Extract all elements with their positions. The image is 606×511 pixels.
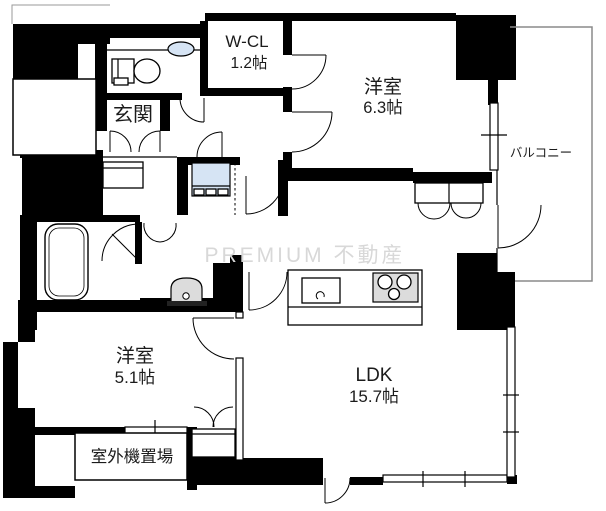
kitchen-counter-icon [288,270,422,325]
floor-plan: PREMIUM 不動産 玄関 W-CL 1.2帖 洋室 6.3帖 バルコニー 洋… [0,0,606,511]
watermark-text: PREMIUM 不動産 [205,244,406,267]
label-entrance: 玄関 [113,103,153,126]
bathtub-icon [45,224,88,300]
window-bedroom63 [490,103,498,170]
label-ldk-size: 15.7帖 [349,387,399,406]
bedroom51-closet-doors [192,407,235,457]
label-balcony: バルコニー [510,146,572,160]
toilet-door [180,98,204,122]
toilet-icon [112,59,160,85]
label-wcl-size: 1.2帖 [230,54,267,72]
entrance-closet-doors [110,131,160,152]
balcony-door [498,205,541,248]
hall-door [197,132,222,157]
label-outdoor-unit: 室外機置場 [91,447,174,466]
label-bedroom51-size: 5.1帖 [115,368,156,387]
washroom-door [249,272,287,310]
kitchen-sink-icon [302,278,340,303]
washroom-swing-doors [144,223,176,242]
stove-icon [373,273,418,302]
bedroom51-door [193,318,234,359]
floor-plan-canvas: PREMIUM 不動産 玄関 W-CL 1.2帖 洋室 6.3帖 バルコニー 洋… [0,0,606,511]
label-bedroom63: 洋室 [364,76,402,98]
exterior-boundary-line [12,5,110,24]
toilet-basin-icon [168,42,194,56]
label-ldk: LDK [356,365,393,386]
shoe-cabinet-icon [103,162,143,188]
window-ldk-bottom [383,475,507,482]
label-bedroom63-size: 6.3帖 [363,98,402,117]
ldk-bottom-door [325,478,350,503]
bedroom63-closet [415,183,483,219]
bedroom63-door [292,112,332,152]
bathroom-door [102,224,139,261]
washbasin-icon [167,278,207,306]
label-bedroom51: 洋室 [116,345,154,367]
porch-room [13,79,96,155]
window-ldk-right [507,327,515,477]
label-wcl: W-CL [225,32,268,51]
washing-machine-icon [192,163,230,196]
wcl-door [292,55,326,89]
